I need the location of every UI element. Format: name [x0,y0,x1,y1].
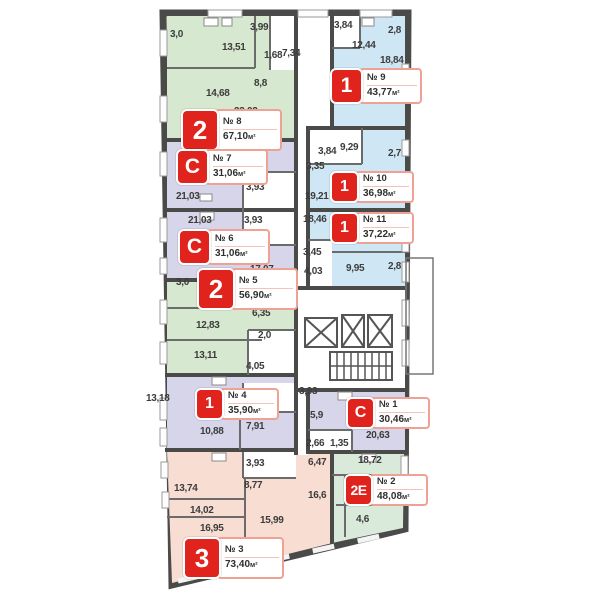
room-area-label: 21,03 [188,215,212,226]
apartment-info: № 10 36,98м² [355,171,414,203]
room-area-label: 12,83 [196,320,220,331]
room-area-label: 4,03 [304,266,322,277]
room-area-label: 20,63 [366,430,390,441]
apartment-area: 35,90м² [228,404,274,417]
apartment-badge-10[interactable]: 1 № 10 36,98м² [330,171,414,203]
room-area-label: 3,45 [303,247,321,258]
apartment-badge-11[interactable]: 1 № 11 37,22м² [330,212,414,244]
room-area-label: 18,72 [358,455,382,466]
apartment-badge-3[interactable]: 3 № 3 73,40м² [183,537,284,579]
apartment-type-tile: C [176,149,209,185]
floor-plan: 3,0 13,51 3,99 1,68 7,34 8,8 14,68 23,02… [0,0,600,600]
apartment-type-tile: C [178,229,211,265]
apartment-number: № 4 [228,391,274,404]
room-area-label: 13,74 [174,483,198,494]
apartment-area: 73,40м² [225,558,279,571]
room-area-label: 7,91 [246,421,264,432]
apartment-badge-5[interactable]: 2 № 5 56,90м² [197,268,298,310]
apartment-badge-1[interactable]: C № 1 30,46м² [346,397,430,429]
apartment-number: № 6 [215,234,265,247]
room-area-label: 3,35 [306,161,324,172]
room-area-label: 2,8 [388,261,401,272]
room-area-label: 7,34 [282,48,300,59]
apartment-number: № 7 [213,154,263,167]
apartment-area: 48,08м² [377,490,423,503]
apartment-area: 30,46м² [379,413,425,426]
room-area-label: 19,21 [305,191,329,202]
apartment-area: 36,98м² [363,187,409,200]
room-area-label: 13,11 [194,350,217,361]
room-area-label: 4,6 [356,514,369,525]
apartment-badge-7[interactable]: C № 7 31,06м² [176,149,268,185]
apartment-number: № 5 [239,276,293,289]
apartment-type-tile: 3 [183,537,221,579]
room-area-label: 5,9 [310,410,323,421]
apartment-info: № 9 43,77м² [359,68,422,104]
room-area-label: 3,93 [299,386,317,397]
apartment-number: № 10 [363,174,409,187]
room-area-label: 2,66 [306,438,324,449]
room-area-label: 6,47 [308,457,326,468]
elevator-shafts [305,315,392,347]
apartment-number: № 2 [377,477,423,490]
room-area-label: 18,84 [380,55,404,66]
room-area-label: 10,88 [200,426,224,437]
apartment-number: № 9 [367,73,417,86]
apartment-type-tile: 1 [330,212,359,244]
room-area-label: 9,29 [340,142,358,153]
apartment-badge-6[interactable]: C № 6 31,06м² [178,229,270,265]
apartment-number: № 11 [363,215,409,228]
room-area-label: 14,68 [206,88,230,99]
room-area-label: 3,93 [244,215,262,226]
room-area-label: 3,93 [246,458,264,469]
apartment-info: № 6 31,06м² [207,229,270,265]
balcony-outline [406,258,433,374]
room-area-label: 16,6 [308,490,326,501]
apartment-area: 37,22м² [363,228,409,241]
apartment-badge-9[interactable]: 1 № 9 43,77м² [330,68,422,104]
apartment-info: № 5 56,90м² [231,268,298,310]
room-area-label: 21,03 [176,191,200,202]
room-area-label: 3,99 [250,22,268,33]
room-area-label: 3,84 [318,146,336,157]
apartment-area: 31,06м² [213,167,263,180]
apartment-area: 43,77м² [367,86,417,99]
room-area-label: 14,02 [190,505,214,516]
room-area-label: 2,8 [388,25,401,36]
room-area-label: 3,0 [176,277,189,288]
room-area-label: 3,84 [334,20,352,31]
apartment-info: № 4 35,90м² [220,388,279,420]
apartment-number: № 8 [223,117,277,130]
room-area-label: 1,35 [330,438,348,449]
room-area-label: 1,68 [264,50,282,61]
apartment-type-tile: 2 [197,268,235,310]
apartment-info: № 8 67,10м² [215,109,282,151]
apartment-area: 56,90м² [239,289,293,302]
apartment-info: № 3 73,40м² [217,537,284,579]
room-area-label: 2,0 [258,330,271,341]
floor-plan-drawing [0,0,600,600]
apartment-type-tile: C [346,397,375,429]
apartment-info: № 2 48,08м² [369,474,428,506]
apartment-type-tile: 1 [195,388,224,420]
room-area-label: 13,51 [222,42,246,53]
apartment-type-tile: 1 [330,171,359,203]
room-area-label: 13,18 [146,393,170,404]
room-area-label: 9,95 [346,263,364,274]
room-area-label: 15,99 [260,515,284,526]
room-area-label: 16,95 [200,523,224,534]
apartment-type-tile: 2Е [344,474,373,506]
room-area-label: 3,0 [170,29,183,40]
apartment-area: 31,06м² [215,247,265,260]
apartment-type-tile: 2 [181,109,219,151]
room-area-label: 8,77 [244,480,262,491]
staircase [330,352,392,380]
apartment-type-tile: 1 [330,68,363,104]
apartment-info: № 1 30,46м² [371,397,430,429]
apartment-info: № 11 37,22м² [355,212,414,244]
apartment-number: № 3 [225,545,279,558]
room-area-label: 18,46 [303,214,327,225]
room-area-label: 8,8 [254,78,267,89]
room-area-label: 2,7 [388,148,401,159]
apartment-badge-2[interactable]: 2Е № 2 48,08м² [344,474,428,506]
apartment-number: № 1 [379,400,425,413]
room-area-label: 4,05 [246,361,264,372]
room-area-label: 12,44 [352,40,376,51]
apartment-badge-4[interactable]: 1 № 4 35,90м² [195,388,279,420]
apartment-info: № 7 31,06м² [205,149,268,185]
apartment-area: 67,10м² [223,130,277,143]
apartment-badge-8[interactable]: 2 № 8 67,10м² [181,109,282,151]
